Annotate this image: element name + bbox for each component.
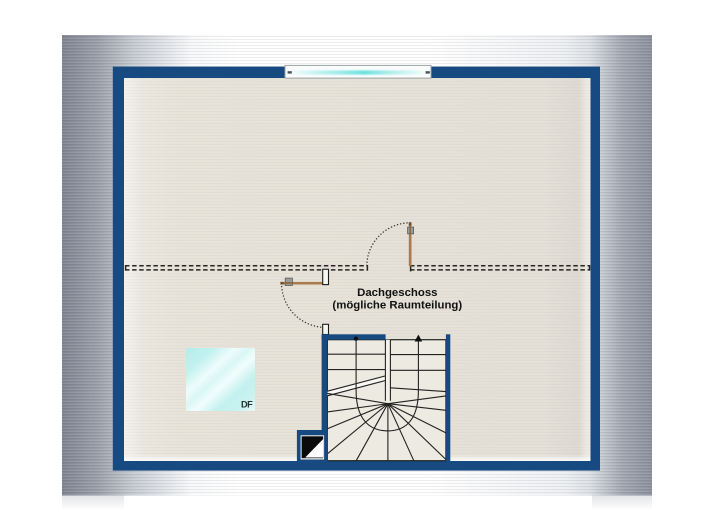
svg-text:DF: DF [241,399,253,409]
svg-text:(mögliche Raumteilung): (mögliche Raumteilung) [332,300,462,312]
svg-text:Dachgeschoss: Dachgeschoss [357,287,437,299]
